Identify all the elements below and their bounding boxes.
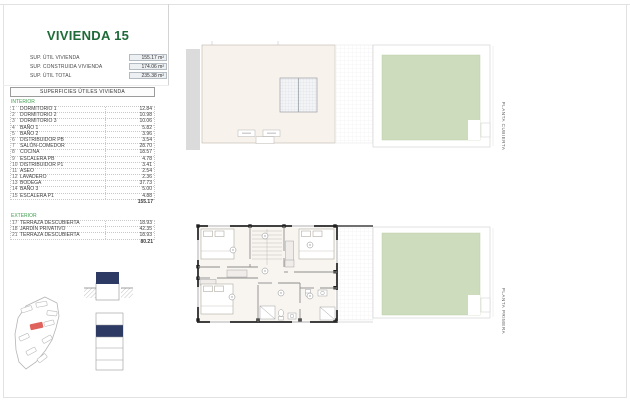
- row-value: 4.78: [105, 157, 154, 162]
- roof-plan: PLANTA CUBIERTA: [180, 40, 510, 170]
- summary-label: SUP. ÚTIL VIVIENDA: [30, 55, 80, 61]
- row-number: 21: [11, 233, 20, 238]
- interior-table-title: SUPERFICIES ÚTILES VIVIENDA: [10, 87, 155, 97]
- garden-notch: [468, 120, 480, 140]
- summary-value: 155.17 m²: [129, 54, 167, 61]
- interior-table: SUPERFICIES ÚTILES VIVIENDA INTERIOR 1 D…: [10, 87, 155, 205]
- private-garden-area: [373, 227, 490, 318]
- info-panel: VIVIENDA 15 SUP. ÚTIL VIVIENDA 155.17 m²…: [8, 8, 168, 245]
- garden-green: [382, 55, 480, 140]
- roof-notch: [256, 137, 274, 144]
- row-number: 3: [11, 119, 20, 124]
- row-label: ESCALERA P1: [20, 194, 105, 199]
- interior-rows: 1 DORMITORIO 1 12.84 2 DORMITORIO 2 10.9…: [10, 106, 155, 200]
- garden-corner-box: [481, 123, 490, 137]
- frame-bottom-line: [3, 397, 627, 398]
- basement-box: [96, 283, 119, 300]
- site-outline: [15, 297, 59, 369]
- row-number: 15: [11, 194, 20, 199]
- row-value: 10.06: [105, 119, 154, 124]
- interior-section-label: INTERIOR: [11, 99, 155, 105]
- row-number: 14: [11, 187, 20, 192]
- tile-strip: [335, 45, 373, 143]
- interior-total-value: 155.17: [107, 200, 155, 205]
- summary-value: 174.06 m²: [129, 63, 167, 70]
- row-value: 5.82: [105, 126, 154, 131]
- garden-notch: [468, 295, 480, 315]
- bed-bedroom-2: [299, 229, 334, 259]
- bed-bedroom-1: [201, 229, 234, 259]
- plan-label-cubierta: PLANTA CUBIERTA: [501, 102, 506, 151]
- frame-right-line: [626, 4, 627, 398]
- row-label: ESCALERA PB: [20, 157, 105, 162]
- exterior-section-label: EXTERIOR: [11, 213, 155, 219]
- row-label: BAÑO 3: [20, 187, 105, 192]
- skylight: [280, 78, 317, 112]
- summary-label: SUP. ÚTIL TOTAL: [30, 73, 72, 79]
- exterior-total-row: 80.21: [10, 240, 155, 245]
- row-label: BAÑO 1: [20, 126, 105, 131]
- ground-hatch-left: [84, 288, 96, 298]
- plan-label-primera: PLANTA PRIMERA: [501, 288, 506, 335]
- summary-row: SUP. CONSTRUIDA VIVIENDA 174.06 m²: [30, 62, 167, 71]
- first-floor-plan: PLANTA PRIMERA: [180, 215, 510, 345]
- exterior-total-value: 80.21: [107, 240, 155, 245]
- garden-corner-box: [481, 298, 490, 312]
- page-title: VIVIENDA 15: [8, 28, 168, 43]
- highlighted-level-box: [96, 272, 119, 284]
- row-label: DORMITORIO 3: [20, 119, 105, 124]
- summary-row: SUP. ÚTIL TOTAL 235.38 m²: [30, 71, 167, 80]
- level-indicator-stack: [94, 311, 126, 373]
- bed-bedroom-3: [201, 284, 233, 314]
- row-number: 4: [11, 126, 20, 131]
- highlighted-floor: [96, 325, 123, 337]
- row-value: 18.57: [105, 150, 154, 155]
- row-value: 18.93: [105, 233, 154, 238]
- level-indicator-section: [82, 268, 134, 302]
- frame-top-line: [0, 4, 630, 5]
- covered-terrace-area: [373, 45, 490, 147]
- surface-summary: SUP. ÚTIL VIVIENDA 155.17 m² SUP. CONSTR…: [30, 53, 167, 80]
- ground-hatch-right: [121, 288, 133, 298]
- summary-row: SUP. ÚTIL VIVIENDA 155.17 m²: [30, 53, 167, 62]
- tile-strip: [337, 228, 373, 320]
- exterior-table: EXTERIOR 17 TERRAZA DESCUBIERTA 18.93 18…: [10, 213, 155, 245]
- site-key-map: [12, 294, 64, 376]
- summary-value: 235.38 m²: [129, 72, 167, 79]
- row-value: 5.00: [105, 187, 154, 192]
- neighbor-strip: [186, 49, 200, 150]
- row-number: 9: [11, 157, 20, 162]
- interior-total-row: 155.17: [10, 200, 155, 205]
- summary-label: SUP. CONSTRUIDA VIVIENDA: [30, 64, 102, 70]
- title-block-separator: [168, 4, 169, 85]
- dimension-ticks: [212, 41, 278, 45]
- exterior-rows: 17 TERRAZA DESCUBIERTA 18.93 18 JARDÍN P…: [10, 220, 155, 240]
- stack-outline: [96, 313, 123, 370]
- garden-green: [382, 233, 480, 315]
- row-label: TERRAZA DESCUBIERTA: [20, 233, 105, 238]
- frame-left-line: [3, 4, 4, 398]
- row-number: 8: [11, 150, 20, 155]
- row-label: COCINA: [20, 150, 105, 155]
